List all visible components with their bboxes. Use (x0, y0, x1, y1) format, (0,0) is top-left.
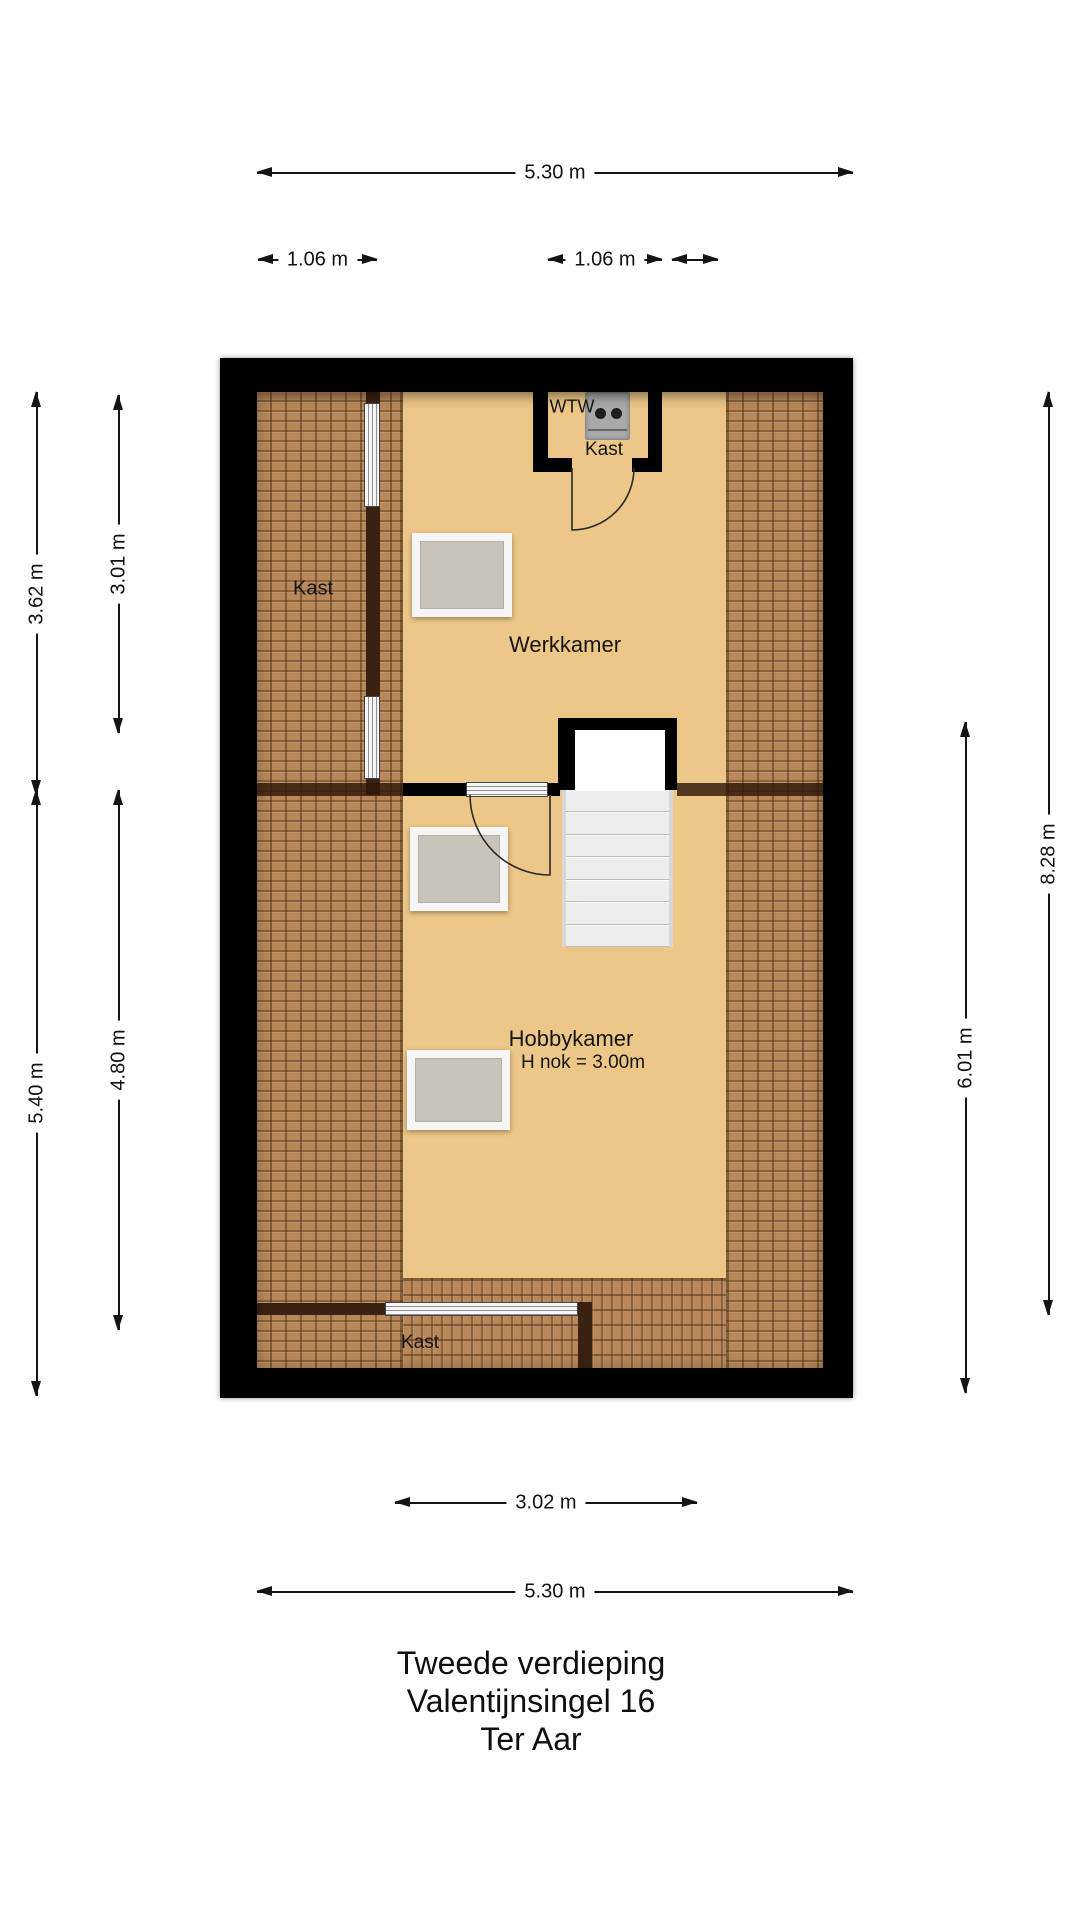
dimension-left-lower-outer: 5.40 m (36, 790, 38, 1396)
arrowhead-right-icon (362, 254, 378, 264)
arrowhead-left-icon (547, 254, 563, 264)
room-label-hobbykamer: Hobbykamer (509, 1026, 634, 1052)
room-label-werkkamer: Werkkamer (509, 632, 621, 658)
dimension-bottom-total-width: 5.30 m (257, 1591, 853, 1593)
dimension-label: 8.28 m (1038, 814, 1061, 893)
dimension-left-upper-outer: 3.62 m (36, 392, 38, 795)
dimension-label: 4.80 m (108, 1020, 131, 1099)
dimension-label: 5.30 m (515, 1581, 594, 1604)
arrowhead-up-icon (31, 391, 41, 407)
arrowhead-down-icon (960, 1378, 970, 1394)
room-label-kast-bottom: Kast (401, 1332, 439, 1354)
dimension-label: 3.01 m (108, 524, 131, 603)
wtw-closet-door-arc (572, 468, 634, 530)
dimension-top-closet-width: 1.06 m (548, 259, 662, 261)
dimension-label: 1.06 m (278, 249, 357, 272)
title-block: Tweede verdieping Valentijnsingel 16 Ter… (397, 1644, 666, 1758)
arrowhead-up-icon (960, 721, 970, 737)
arrowhead-up-icon (113, 394, 123, 410)
floor-plan: WTW Kast Kast Werkkamer Hobbykamer H nok… (220, 358, 853, 1398)
arrowhead-right-icon (682, 1497, 698, 1507)
dimension-right-outer: 8.28 m (1048, 392, 1050, 1315)
arrowhead-down-icon (113, 718, 123, 734)
arrowhead-right-icon (838, 1586, 854, 1596)
dimension-label: 3.02 m (506, 1492, 585, 1515)
dimension-top-kast-width: 1.06 m (258, 259, 377, 261)
arrowhead-up-icon (113, 789, 123, 805)
title-address: Valentijnsingel 16 (397, 1682, 666, 1720)
dimension-top-unlabeled (672, 259, 718, 261)
floorplan-page: 5.30 m 1.06 m 1.06 m 3.62 m 3.01 m 5.40 … (0, 0, 1080, 1920)
arrowhead-left-icon (671, 254, 687, 264)
dimension-left-upper-inner: 3.01 m (118, 395, 120, 733)
dimension-label: 1.06 m (565, 249, 644, 272)
dimension-label: 5.40 m (26, 1053, 49, 1132)
dimension-label: 6.01 m (955, 1018, 978, 1097)
arrowhead-left-icon (394, 1497, 410, 1507)
dimension-bottom-room-width: 3.02 m (395, 1502, 697, 1504)
room-label-kast-left: Kast (293, 578, 333, 601)
room-label-kast-top: Kast (585, 439, 623, 461)
dimension-left-lower-inner: 4.80 m (118, 790, 120, 1330)
arrowhead-left-icon (256, 1586, 272, 1596)
dimension-right-inner: 6.01 m (965, 722, 967, 1393)
arrowhead-down-icon (113, 1315, 123, 1331)
arrowhead-right-icon (647, 254, 663, 264)
arrowhead-right-icon (703, 254, 719, 264)
door-swing-arcs (220, 358, 853, 1398)
dimension-label: 5.30 m (515, 162, 594, 185)
dimension-label: 3.62 m (26, 554, 49, 633)
arrowhead-up-icon (31, 789, 41, 805)
room-label-wtw: WTW (550, 397, 595, 418)
arrowhead-up-icon (1043, 391, 1053, 407)
arrowhead-left-icon (257, 254, 273, 264)
arrowhead-right-icon (838, 167, 854, 177)
title-city: Ter Aar (397, 1720, 666, 1758)
arrowhead-down-icon (1043, 1300, 1053, 1316)
title-floor: Tweede verdieping (397, 1644, 666, 1682)
arrowhead-left-icon (256, 167, 272, 177)
hobbykamer-door-arc (470, 795, 550, 875)
arrowhead-down-icon (31, 1381, 41, 1397)
room-label-ridge-height: H nok = 3.00m (521, 1052, 645, 1074)
dimension-top-total-width: 5.30 m (257, 172, 853, 174)
